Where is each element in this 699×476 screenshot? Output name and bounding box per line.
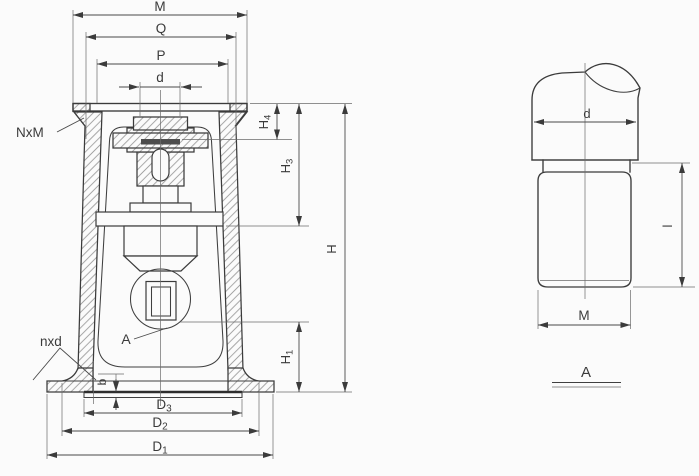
front-view: M Q P d NxM nxd A b H4 H3 H H1 D3 D2 D1 bbox=[16, 0, 352, 459]
dim-label-d: d bbox=[156, 70, 164, 85]
screw-assembly bbox=[96, 117, 223, 329]
detail-body bbox=[538, 172, 631, 287]
flange-left-tip-section bbox=[73, 104, 90, 112]
leader-detail-A bbox=[134, 328, 167, 339]
dim-label-Q: Q bbox=[156, 21, 167, 36]
detail-outline bbox=[532, 63, 640, 299]
detail-view: d l M A bbox=[532, 63, 695, 387]
support-plate-wide bbox=[96, 212, 223, 226]
dim-label-D1: D1 bbox=[152, 439, 168, 457]
base-right-section bbox=[228, 368, 274, 392]
technical-drawing: M Q P d NxM nxd A b H4 H3 H H1 D3 D2 D1 bbox=[0, 0, 699, 476]
leader-NxM bbox=[57, 118, 84, 132]
dim-label-D2: D2 bbox=[152, 415, 168, 433]
callout-label-NxM: NxM bbox=[16, 125, 44, 140]
dim-label-H: H bbox=[324, 244, 339, 253]
dim-label-detail-d: d bbox=[583, 106, 590, 121]
technical-drawing-page: M Q P d NxM nxd A b H4 H3 H H1 D3 D2 D1 bbox=[0, 0, 699, 476]
callout-label-nxd: nxd bbox=[40, 334, 62, 349]
dim-label-b: b bbox=[95, 378, 109, 385]
detail-title-A: A bbox=[581, 364, 591, 381]
dim-label-D3: D3 bbox=[156, 397, 172, 415]
dim-label-M: M bbox=[154, 0, 165, 14]
detail-break-wave bbox=[585, 72, 640, 92]
dim-label-H1: H1 bbox=[278, 350, 296, 365]
callout-label-A: A bbox=[121, 331, 131, 347]
left-wall-section bbox=[74, 112, 102, 370]
dim-label-H3: H3 bbox=[278, 159, 296, 174]
dim-label-P: P bbox=[156, 48, 165, 63]
dim-label-l: l bbox=[660, 224, 675, 227]
detail-labels: d l M A bbox=[552, 106, 675, 387]
flange-right-tip-section bbox=[230, 104, 247, 112]
dim-label-detail-M: M bbox=[578, 308, 589, 323]
flange-plate bbox=[73, 104, 247, 112]
right-wall-section bbox=[219, 112, 247, 370]
dim-label-H4: H4 bbox=[256, 115, 274, 130]
